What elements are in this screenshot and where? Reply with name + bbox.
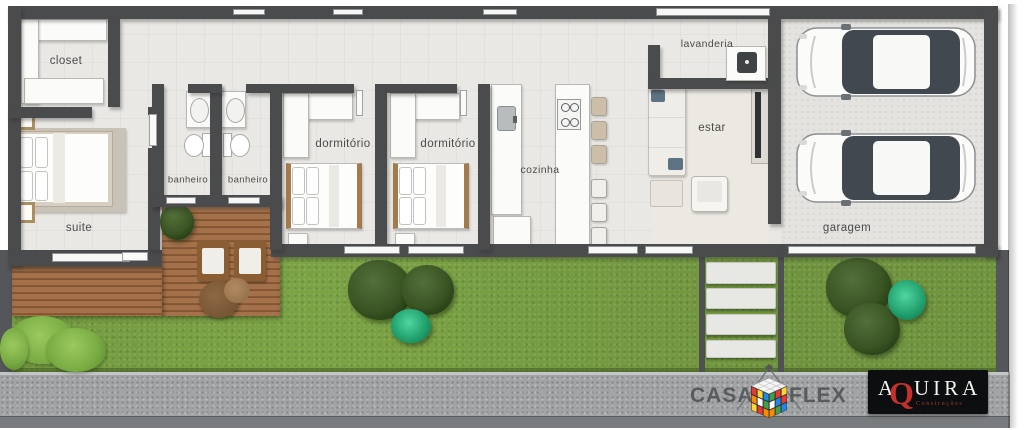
wall-garage-left	[768, 17, 781, 224]
cooktop	[557, 99, 581, 130]
room-label-cozinha: cozinha	[521, 164, 560, 176]
bar-stool	[591, 179, 607, 198]
window-bedroom1	[344, 246, 400, 254]
shrub	[46, 328, 106, 372]
garage-door	[788, 246, 976, 254]
room-label-dormitorio-2: dormitório	[420, 138, 475, 150]
washing-machine	[726, 46, 766, 81]
door-leaf-bedroom1	[356, 90, 363, 116]
potted-plant	[160, 204, 194, 240]
pillow	[292, 197, 305, 225]
stepping-stone	[706, 314, 776, 335]
pillow	[306, 167, 319, 195]
path-edge-right	[778, 257, 784, 372]
deck-lower	[12, 266, 162, 316]
window-living	[645, 246, 693, 254]
door-leaf-suite	[149, 114, 157, 146]
room-label-banheiro-1: banheiro	[168, 175, 208, 186]
wall-bedroom-divider	[375, 84, 387, 250]
car-icon	[795, 24, 977, 100]
burner	[570, 103, 579, 112]
pillow	[292, 167, 305, 195]
bathroom-vanity	[186, 91, 211, 128]
bar-stool	[591, 145, 607, 164]
side-table	[650, 180, 683, 207]
casaflex-word-right: FLEX	[789, 384, 847, 408]
blanket-fold	[436, 165, 446, 227]
wardrobe	[283, 93, 309, 158]
room-label-dormitorio-1: dormitório	[315, 138, 370, 150]
stepping-stone	[706, 340, 776, 358]
armchair-seat	[697, 181, 722, 202]
path-edge-left	[699, 257, 705, 372]
room-label-garagem: garagem	[823, 222, 871, 234]
aquira-subtitle: Construções	[916, 401, 963, 407]
wall-bath-divider	[210, 84, 222, 200]
window-bath	[166, 197, 196, 204]
sofa-pillow	[651, 90, 665, 102]
wall-closet-bottom	[8, 107, 92, 118]
burner	[561, 103, 570, 112]
window	[333, 9, 363, 15]
wall-left	[8, 6, 21, 266]
shrub	[0, 328, 28, 370]
toilet-bowl	[230, 134, 250, 157]
window-suite	[52, 253, 130, 262]
chair-cushion	[239, 248, 261, 274]
closet-wardrobe	[24, 78, 104, 104]
pillow	[399, 167, 412, 195]
deck-chair	[197, 241, 229, 281]
pillow	[413, 167, 426, 195]
wardrobe	[390, 93, 416, 158]
toilet-bowl	[184, 134, 204, 157]
bar-stool	[591, 203, 607, 222]
window-top-long	[656, 8, 770, 16]
wall-closet-right	[108, 19, 120, 107]
bar-stool	[591, 97, 607, 116]
deck-table-top	[224, 278, 250, 303]
pillow	[35, 171, 48, 201]
wall-bath-top	[188, 84, 222, 93]
stepping-stone	[706, 262, 776, 284]
aquira-letters-rest: UIRA	[914, 376, 981, 401]
pillow	[399, 197, 412, 225]
bush	[402, 265, 454, 315]
aquira-letter-q: Q	[889, 375, 914, 412]
washer-door-center	[745, 60, 749, 64]
pillow	[20, 171, 33, 201]
door-leaf-bedroom2	[460, 90, 467, 116]
sink-basin	[226, 98, 245, 123]
wall-bedroom2-top	[387, 84, 457, 93]
pillow	[413, 197, 426, 225]
sidewalk	[0, 372, 1010, 416]
bush-teal	[888, 280, 926, 320]
window	[233, 9, 265, 15]
aquira-logo: A Q UIRA Construções	[868, 370, 988, 414]
pillow	[306, 197, 319, 225]
kitchen-counter	[491, 84, 522, 215]
pillow	[35, 137, 48, 168]
floor-plan-canvas: closet suite banheiro banheiro dormitóri…	[0, 0, 1024, 430]
washer-door	[737, 52, 757, 73]
blanket-fold	[329, 165, 339, 227]
plan-edge-shadow	[1008, 4, 1018, 428]
sink-basin	[190, 98, 209, 123]
sofa-pillow	[668, 158, 683, 170]
room-label-suite: suite	[66, 222, 92, 234]
burner	[570, 118, 579, 127]
wall-right	[984, 6, 998, 257]
faucet	[513, 116, 517, 123]
door-deck	[122, 252, 148, 261]
window	[483, 9, 517, 15]
room-label-lavanderia: lavanderia	[681, 38, 733, 50]
armchair	[691, 176, 728, 212]
room-label-closet: closet	[50, 55, 82, 67]
blanket-fold	[53, 133, 65, 203]
burner	[561, 118, 570, 127]
tv	[755, 92, 761, 158]
window-kitchen	[588, 246, 638, 254]
window-bedroom2	[408, 246, 464, 254]
car-icon	[795, 130, 977, 206]
window-bath	[228, 197, 260, 204]
deck-chair	[234, 241, 266, 281]
room-label-estar: estar	[698, 122, 726, 134]
pillow	[20, 137, 33, 168]
wall-bedroom1-top	[282, 84, 354, 93]
curb	[0, 416, 1010, 428]
room-label-banheiro-2: banheiro	[228, 175, 268, 186]
wall-bedroom1-left	[270, 84, 282, 250]
bush-teal	[391, 309, 431, 343]
wall-bedroom2-right	[478, 84, 490, 250]
chair-cushion	[202, 248, 224, 274]
stepping-stone	[706, 288, 776, 309]
bathroom-vanity	[221, 91, 246, 128]
bar-stool	[591, 121, 607, 140]
